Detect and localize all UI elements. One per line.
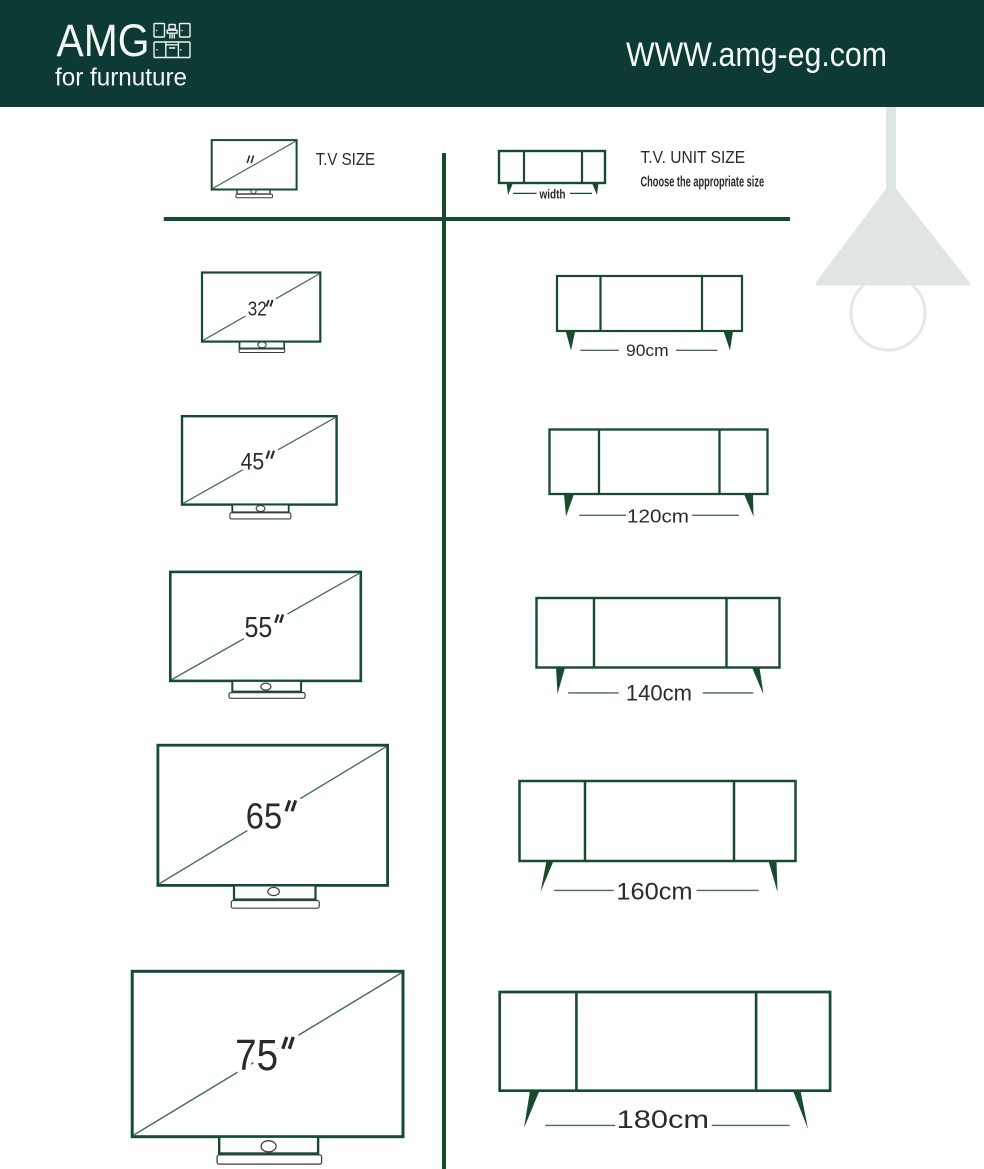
svg-text:width: width <box>539 187 566 201</box>
svg-text:AMG: AMG <box>57 15 150 66</box>
svg-text:75: 75 <box>235 1031 278 1080</box>
svg-text:55: 55 <box>245 612 273 644</box>
svg-text:Choose the appropriate size: Choose the appropriate size <box>641 175 765 191</box>
svg-text:WWW.amg-eg.com: WWW.amg-eg.com <box>626 36 887 74</box>
svg-text:180cm: 180cm <box>617 1106 710 1134</box>
svg-text:for furnuture: for furnuture <box>55 64 187 92</box>
svg-text:T.V SIZE: T.V SIZE <box>316 149 376 169</box>
svg-text:120cm: 120cm <box>627 506 689 526</box>
svg-text:90cm: 90cm <box>626 341 669 360</box>
svg-text:45: 45 <box>241 448 265 475</box>
svg-text:140cm: 140cm <box>626 681 692 706</box>
svg-text:32: 32 <box>248 298 267 320</box>
svg-text:T.V. UNIT SIZE: T.V. UNIT SIZE <box>641 147 746 167</box>
svg-text:160cm: 160cm <box>616 878 692 905</box>
svg-text:65: 65 <box>246 795 282 836</box>
